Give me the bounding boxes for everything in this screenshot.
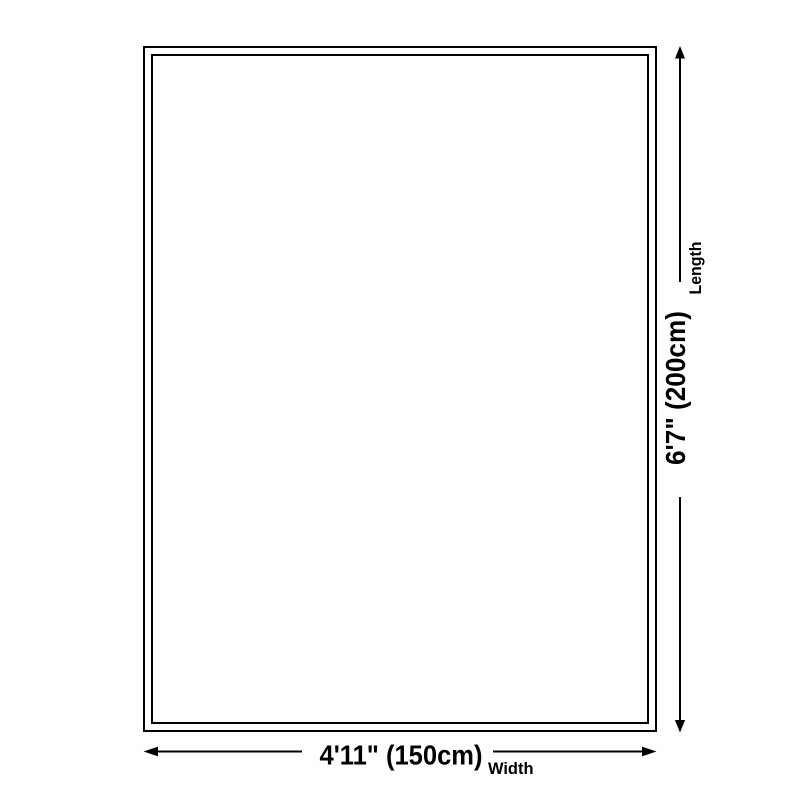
svg-text:Width: Width <box>488 760 534 778</box>
svg-text:6'7" (200cm): 6'7" (200cm) <box>660 311 691 465</box>
svg-text:4'11" (150cm): 4'11" (150cm) <box>320 739 483 770</box>
svg-text:Length: Length <box>687 242 705 295</box>
